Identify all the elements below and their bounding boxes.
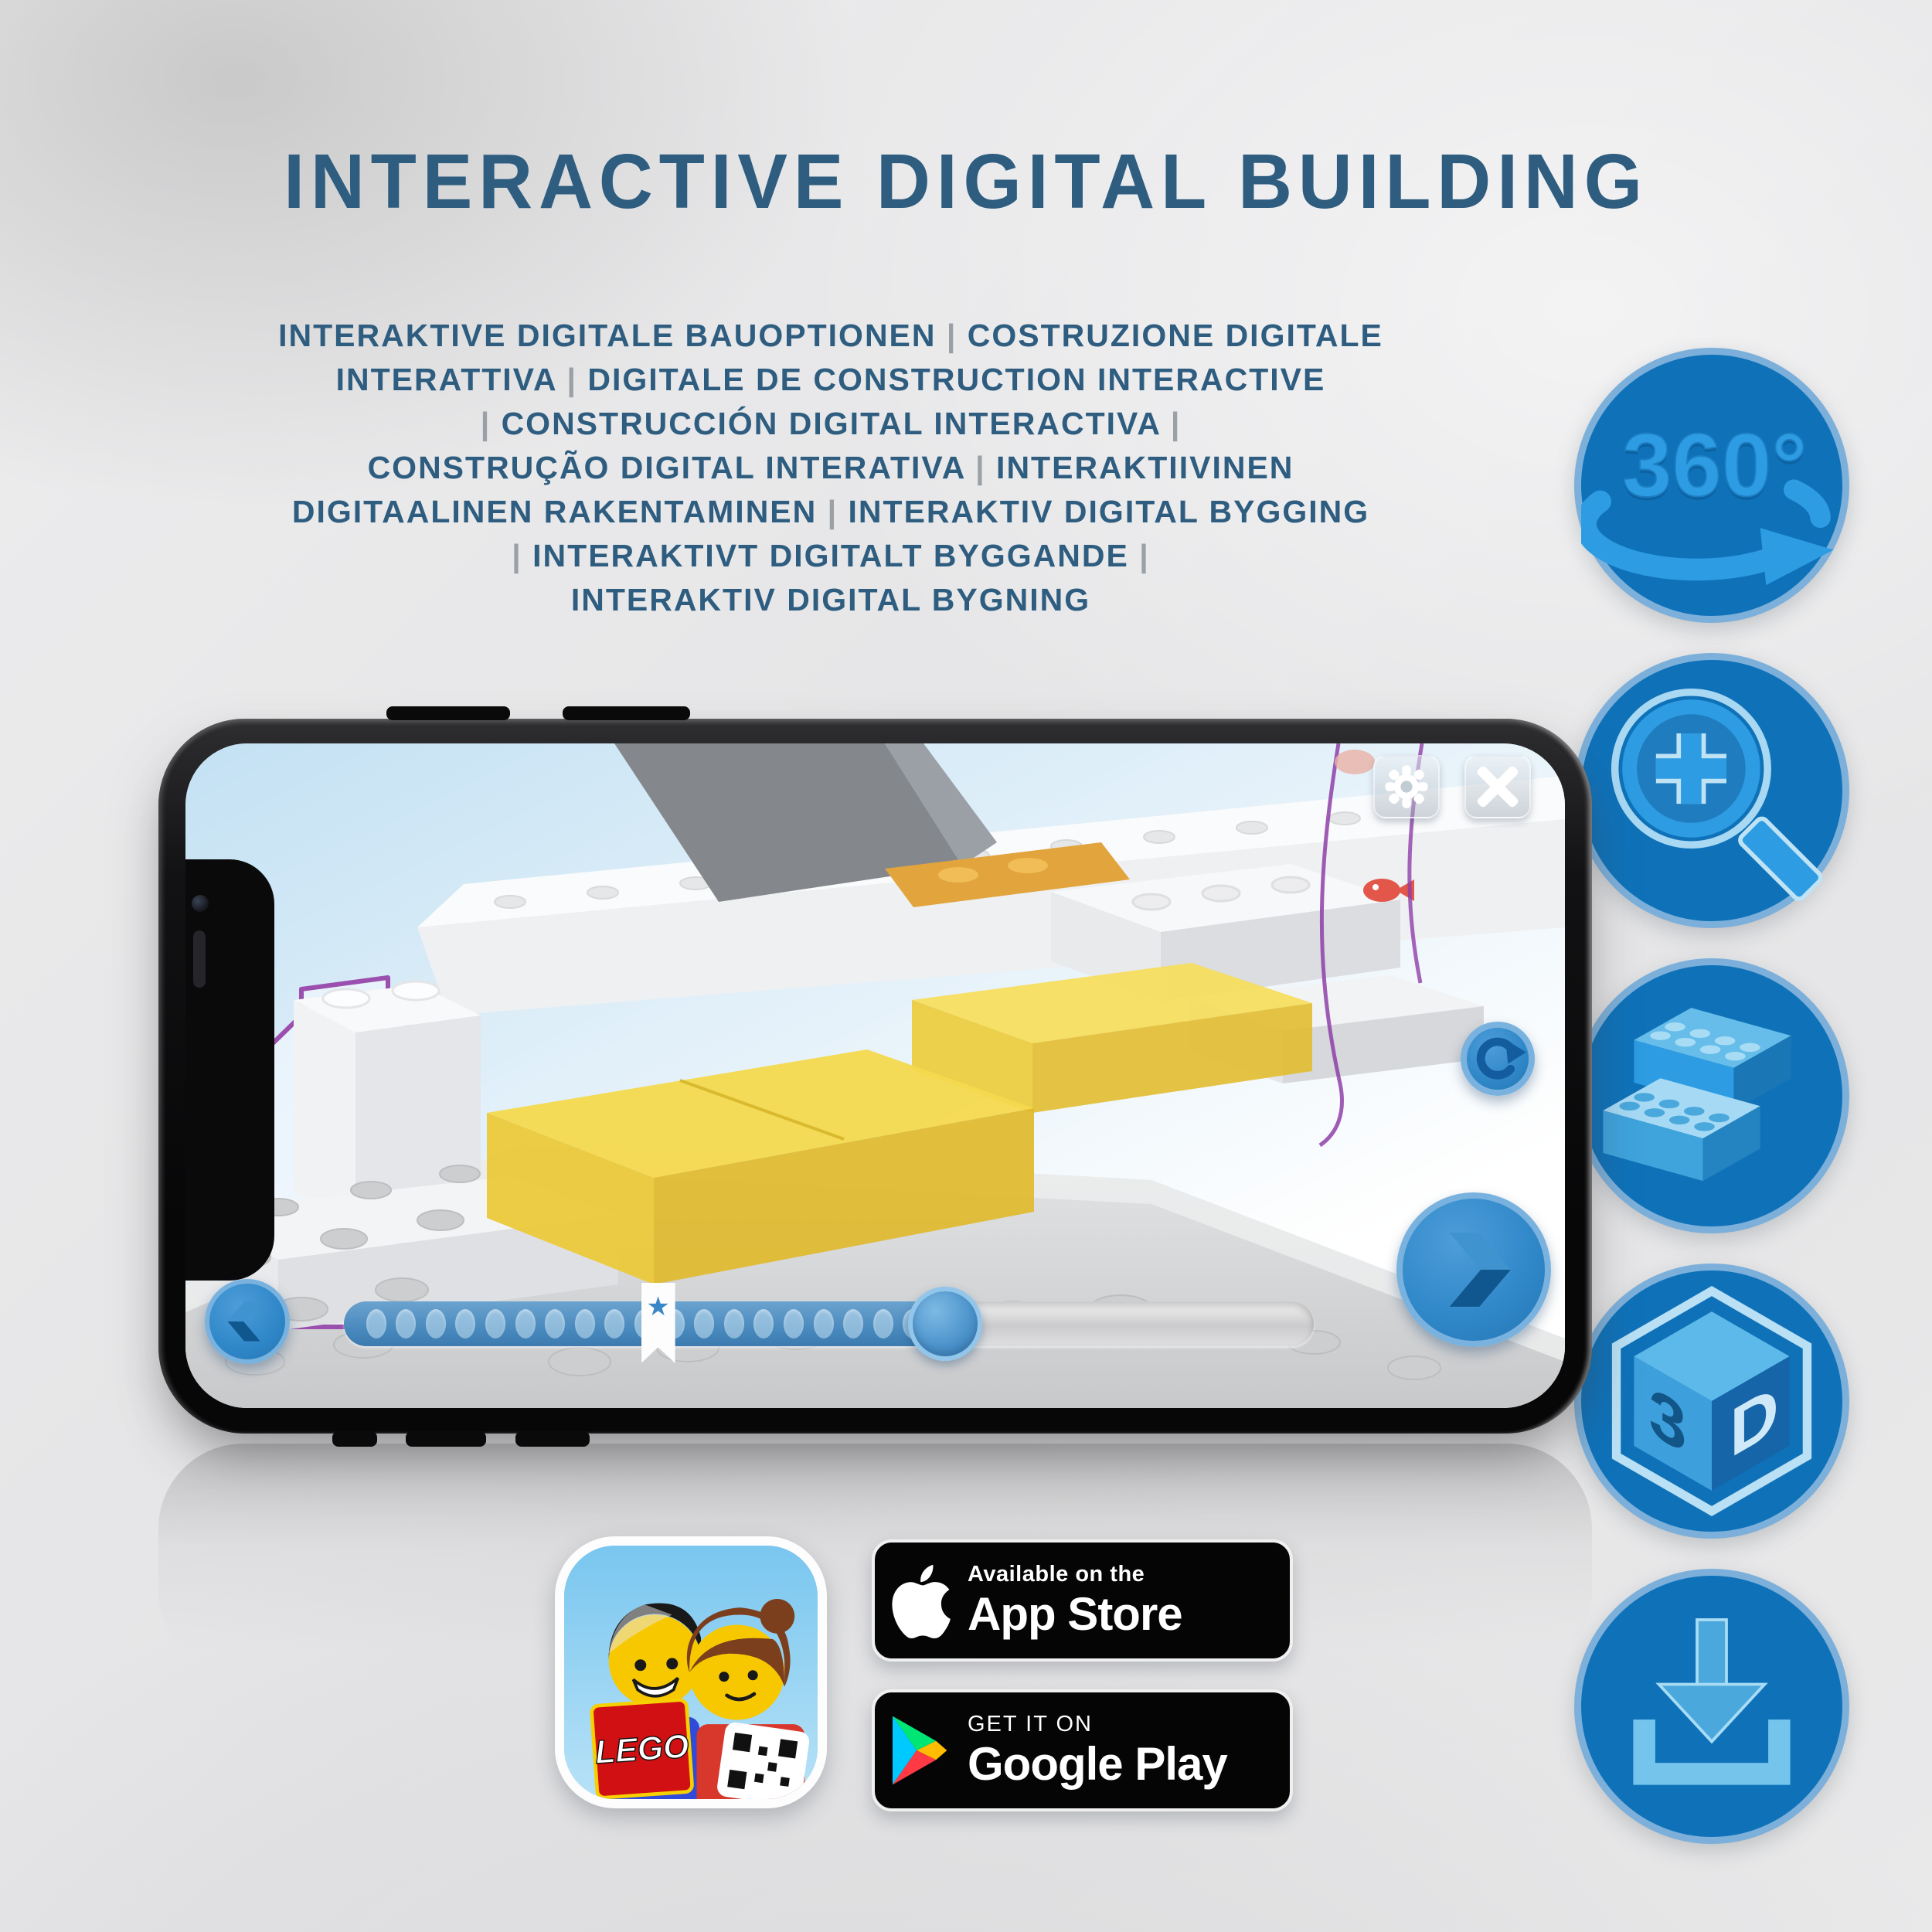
subtitle-line: CONSTRUÇÃO DIGITAL INTERATIVA | INTERAKT… (0, 446, 1662, 490)
rotate-view-button[interactable] (1461, 1022, 1535, 1096)
poster: INTERACTIVE DIGITAL BUILDING INTERAKTIVE… (0, 0, 1932, 1932)
subtitle-line: INTERAKTIVE DIGITALE BAUOPTIONEN | COSTR… (0, 314, 1662, 358)
googleplay-badge[interactable]: GET IT ON Google Play (872, 1689, 1293, 1811)
phone-notch (185, 859, 274, 1281)
bottom-port (406, 1431, 486, 1447)
badge-store-name: App Store (968, 1590, 1182, 1638)
chevron-right-icon (1403, 1199, 1545, 1341)
next-step-button[interactable] (1396, 1192, 1551, 1347)
close-icon (1466, 757, 1529, 817)
feature-3d-view: 3 D (1574, 1264, 1849, 1539)
step-slider[interactable]: ★ (344, 1301, 1314, 1346)
360-rotation-icon: 360° 360° (1581, 355, 1842, 616)
close-button[interactable] (1464, 755, 1531, 818)
lego-app-icon: LEGO (555, 1536, 827, 1808)
subtitle-line: INTERATTIVA | DIGITALE DE CONSTRUCTION I… (0, 358, 1662, 402)
chevron-left-icon (209, 1284, 285, 1359)
subtitle-line: INTERAKTIV DIGITAL BYGNING (0, 578, 1662, 622)
badge-store-name: Google Play (968, 1740, 1227, 1788)
apple-icon (875, 1562, 968, 1639)
settings-button[interactable] (1373, 755, 1440, 818)
front-camera (192, 895, 209, 912)
play-triangle-icon (875, 1716, 968, 1785)
bottom-port (515, 1431, 590, 1447)
page-title: INTERACTIVE DIGITAL BUILDING (29, 138, 1903, 226)
svg-text:LEGO: LEGO (594, 1728, 690, 1771)
badge-tagline: Available on the (968, 1563, 1182, 1586)
subtitle-line: | INTERAKTIVT DIGITALT BYGGANDE | (0, 534, 1662, 578)
bottom-port (332, 1431, 377, 1447)
feature-download (1574, 1569, 1849, 1844)
phone-screen: ★ (185, 743, 1565, 1408)
download-tray-icon (1581, 1576, 1842, 1837)
subtitle-line: | CONSTRUCCIÓN DIGITAL INTERACTIVA | (0, 402, 1662, 446)
lego-app-icon-art: LEGO (564, 1546, 818, 1799)
gear-icon (1375, 757, 1438, 817)
3d-cube-icon: 3 D (1581, 1270, 1842, 1532)
feature-zoom (1574, 653, 1849, 928)
rotate-icon (1467, 1028, 1529, 1090)
badge-tagline: GET IT ON (968, 1713, 1227, 1736)
slider-thumb[interactable] (908, 1287, 982, 1361)
subtitle-line: DIGITAALINEN RAKENTAMINEN | INTERAKTIV D… (0, 490, 1662, 534)
zoom-in-magnifier-icon (1581, 660, 1842, 921)
lego-bricks-icon (1581, 965, 1842, 1226)
volume-button (386, 706, 510, 720)
phone-mockup: ★ (158, 719, 1592, 1434)
feature-bricks (1574, 958, 1849, 1233)
subtitle-block: INTERAKTIVE DIGITALE BAUOPTIONEN | COSTR… (0, 314, 1662, 622)
volume-button (563, 706, 690, 720)
appstore-badge[interactable]: Available on the App Store (872, 1539, 1293, 1662)
previous-step-button[interactable] (205, 1279, 290, 1364)
speaker (193, 930, 206, 988)
feature-360-rotation: 360° 360° (1574, 348, 1849, 623)
svg-text:360°: 360° (1622, 414, 1808, 515)
